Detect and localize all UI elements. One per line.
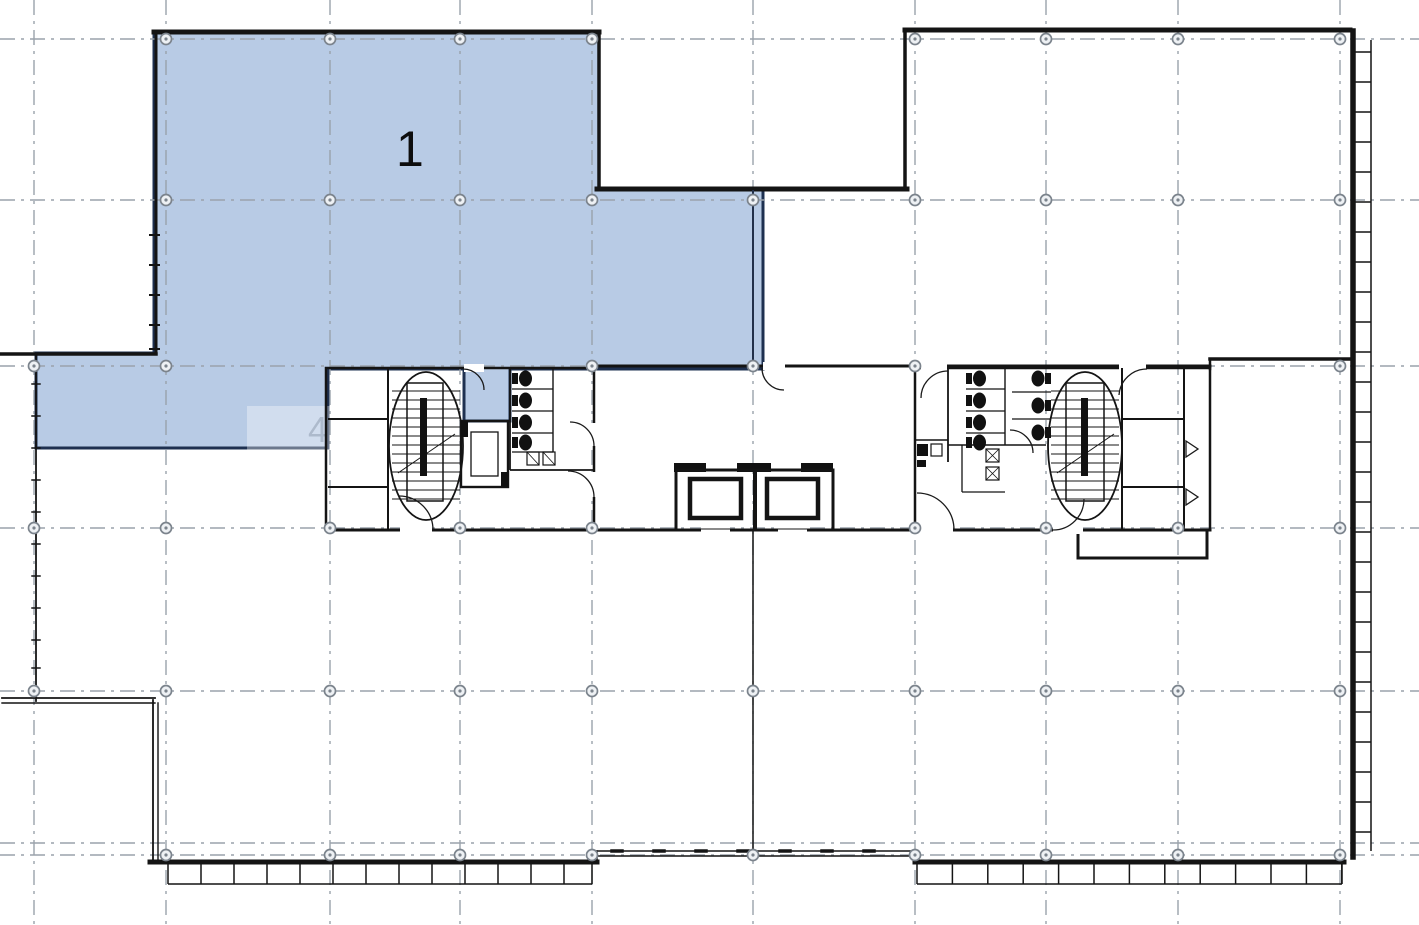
right-rooms-divider <box>1122 419 1184 487</box>
toilet-icon <box>1032 398 1045 414</box>
elevator-car-left <box>690 479 741 518</box>
right-core <box>915 362 1198 534</box>
right-core-extension <box>1078 530 1207 558</box>
door-gap <box>464 364 484 372</box>
toilet-icon <box>966 373 972 384</box>
toilet-icon <box>973 371 986 387</box>
toilet-icon <box>519 371 532 387</box>
toilet-icon <box>519 415 532 431</box>
sink-detail <box>527 452 539 465</box>
sink-detail <box>543 452 555 465</box>
toilet-icon <box>512 437 518 448</box>
toilet-icon <box>519 435 532 451</box>
toilet-icon <box>966 395 972 406</box>
door-wedge <box>1186 489 1198 505</box>
toilet-icon <box>1045 400 1051 411</box>
toilet-icon <box>512 417 518 428</box>
fixture-block <box>917 444 928 456</box>
lav-fixture-x <box>986 467 999 480</box>
toilet-icon <box>1045 373 1051 384</box>
stall-partitions <box>512 389 553 452</box>
toilet-icon <box>973 435 986 451</box>
zone-layer: 4 1 <box>36 31 763 450</box>
door-arc <box>1053 499 1084 530</box>
shaft-left-detail <box>461 421 468 437</box>
stair-left-core-bar <box>420 398 427 476</box>
toilet-icon <box>519 393 532 409</box>
door-gap <box>921 362 947 370</box>
toilet-icon <box>966 437 972 448</box>
right-core-doors <box>917 369 1198 530</box>
elevator-car-right <box>767 479 818 518</box>
toilet-icon <box>512 395 518 406</box>
door-arc <box>921 371 948 398</box>
lav-fixture-x <box>986 449 999 462</box>
janitor-box <box>931 444 942 456</box>
toilet-icon <box>1032 371 1045 387</box>
corridor-doors <box>762 362 785 390</box>
toilet-icon <box>973 393 986 409</box>
door-arc <box>762 368 784 390</box>
door-arc <box>1119 369 1147 395</box>
floor-plan: 4 1 <box>0 0 1419 925</box>
toilet-icon <box>973 415 986 431</box>
fixture-block <box>917 460 926 467</box>
door-gap <box>763 362 785 370</box>
door-arc <box>917 493 954 530</box>
stair-right-core-bar <box>1081 398 1088 476</box>
door-wedge <box>1186 441 1198 457</box>
toilet-icon <box>1032 425 1045 441</box>
door-gap <box>400 526 432 534</box>
toilet-icon <box>966 417 972 428</box>
zone-1-label: 1 <box>396 121 424 177</box>
toilet-icon <box>512 373 518 384</box>
door-arc <box>1010 430 1033 453</box>
floor-plan-canvas: 4 1 <box>0 0 1419 925</box>
elevator-bank <box>674 463 833 535</box>
shaft-left-inner <box>471 432 498 476</box>
toilet-icon <box>1045 427 1051 438</box>
door-gap <box>918 526 953 534</box>
shaft-left <box>461 421 508 487</box>
zone-1-highlight[interactable] <box>36 31 763 448</box>
shaft-left-detail <box>501 472 508 487</box>
